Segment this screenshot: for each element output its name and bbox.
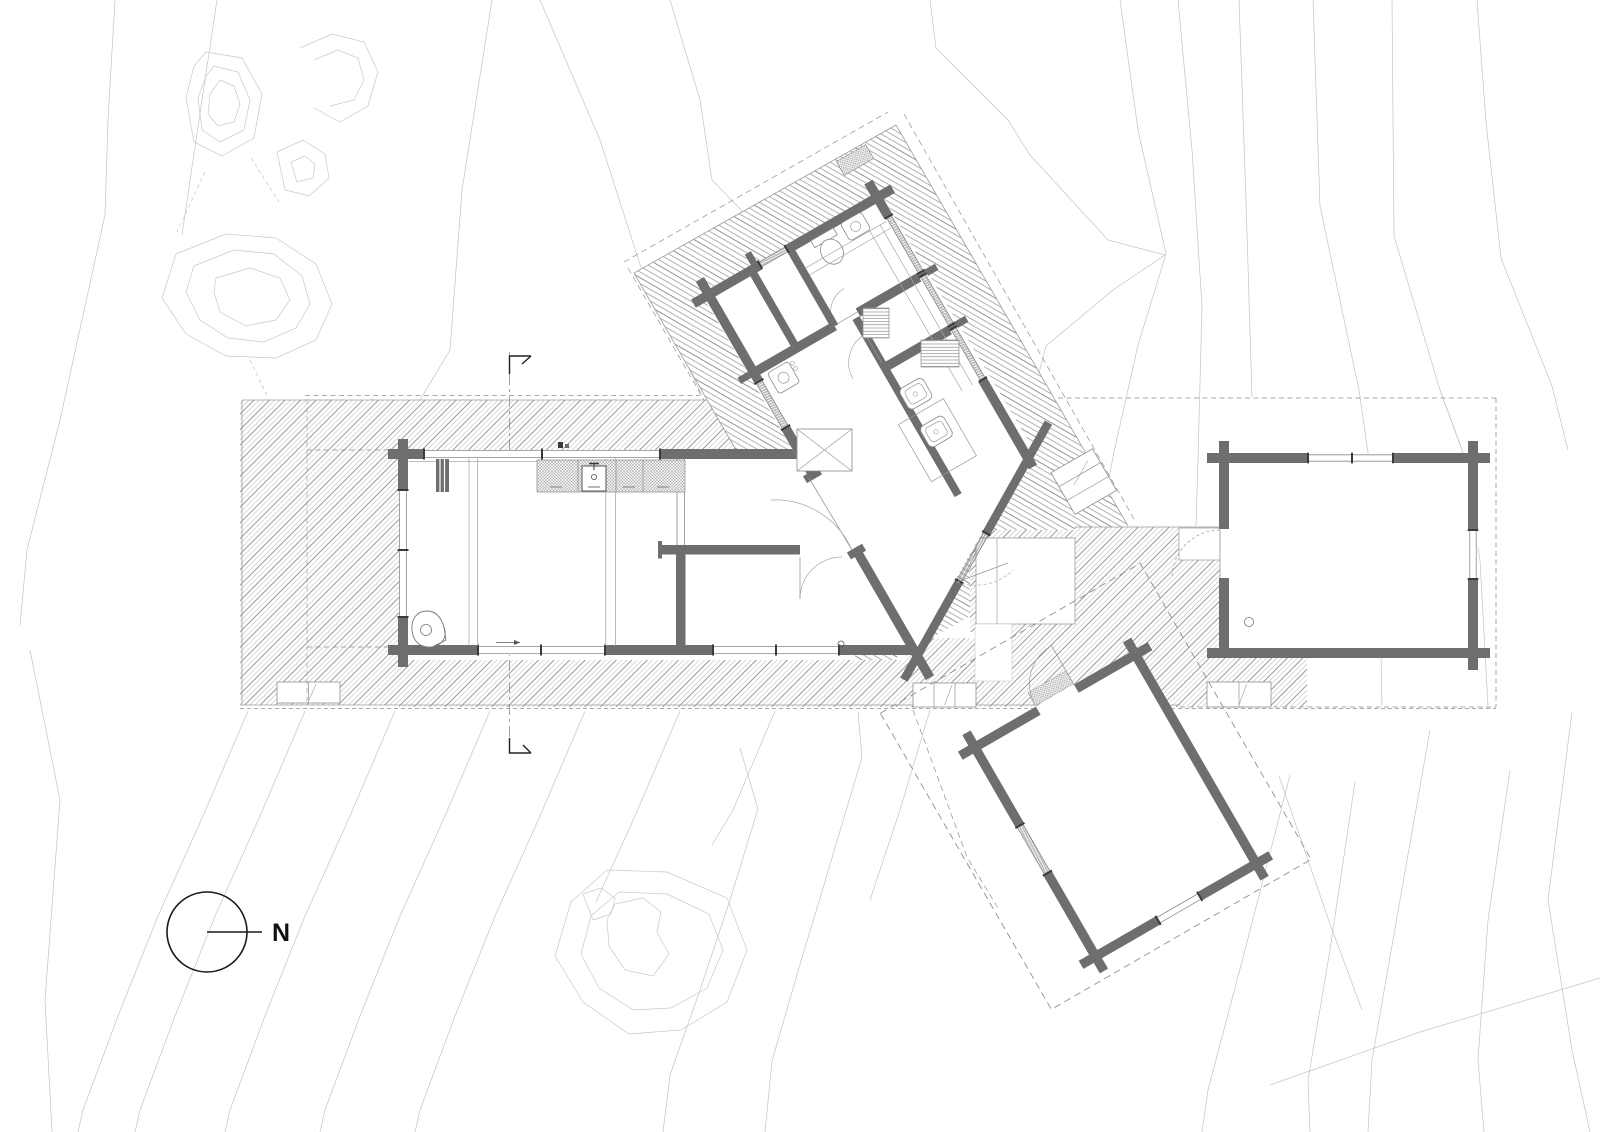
svg-text:N: N [272, 919, 290, 947]
